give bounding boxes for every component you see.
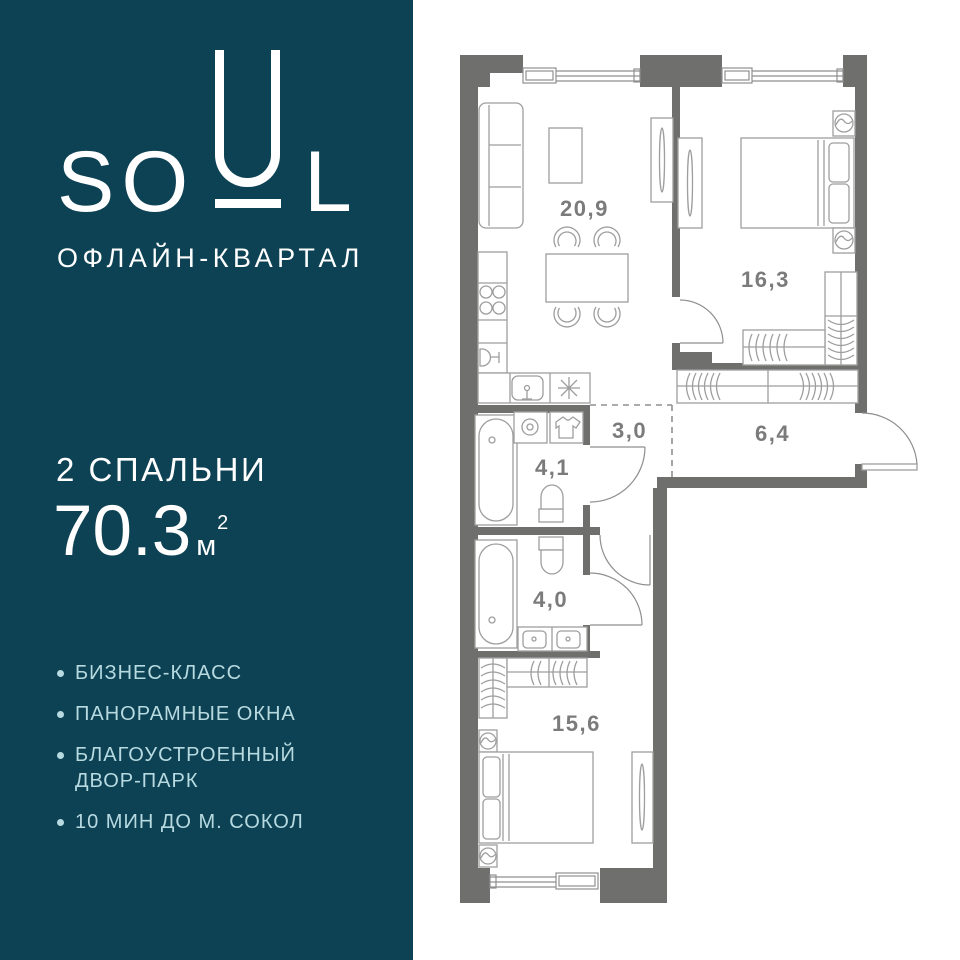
feature-item: БЛАГОУСТРОЕННЫЙ ДВОР-ПАРК bbox=[57, 742, 329, 794]
cooktop-icon bbox=[558, 377, 580, 399]
room-label-bedroom-2: 15,6 bbox=[552, 711, 601, 736]
closet-hallway bbox=[677, 370, 858, 403]
wardrobe-bedroom-1 bbox=[678, 138, 702, 228]
floorplan-panel: 20,9 16,3 3,0 6,4 4,1 4,0 15,6 bbox=[413, 0, 960, 960]
room-label-bathroom-1: 4,1 bbox=[535, 455, 570, 480]
area-exponent: 2 bbox=[217, 512, 229, 534]
brand-subtitle: ОФЛАЙН-КВАРТАЛ bbox=[57, 243, 364, 274]
closet-corner-bedroom-1 bbox=[825, 272, 857, 365]
console-bedroom-2 bbox=[632, 752, 653, 843]
brand-panel: SO L ОФЛАЙН-КВАРТАЛ 2 СПАЛЬНИ 70.3м2 БИЗ… bbox=[0, 0, 413, 960]
bedrooms-label: 2 СПАЛЬНИ bbox=[56, 451, 267, 489]
bullet-icon bbox=[57, 711, 64, 718]
tv-console bbox=[651, 118, 673, 202]
bullet-icon bbox=[57, 819, 64, 826]
washing-machine bbox=[514, 412, 547, 443]
total-area: 70.3м2 bbox=[53, 496, 229, 567]
bathtub-1 bbox=[475, 415, 517, 525]
bullet-icon bbox=[57, 752, 64, 759]
area-unit: м2 bbox=[196, 530, 229, 562]
toilet-2 bbox=[539, 537, 563, 574]
logo-letters-so: SO bbox=[57, 151, 195, 213]
window-bedroom-1 bbox=[722, 68, 843, 83]
floorplan-drawing: 20,9 16,3 3,0 6,4 4,1 4,0 15,6 bbox=[413, 0, 960, 960]
closet-row-bedroom-2 bbox=[507, 658, 587, 687]
door-bedroom-1 bbox=[680, 300, 723, 343]
room-label-living: 20,9 bbox=[560, 196, 609, 221]
nightstand-lamp-2a bbox=[479, 730, 497, 752]
dining-table bbox=[546, 254, 628, 302]
laundry-basket bbox=[550, 412, 583, 443]
feature-list: БИЗНЕС-КЛАСС ПАНОРАМНЫЕ ОКНА БЛАГОУСТРОЕ… bbox=[57, 660, 329, 850]
area-number: 70.3 bbox=[53, 492, 191, 571]
window-living bbox=[523, 68, 640, 83]
wardrobe-bedroom-2 bbox=[479, 658, 507, 718]
logo-u-underline bbox=[215, 199, 281, 208]
bathtub-2 bbox=[475, 540, 517, 648]
nightstand-lamp-2b bbox=[479, 845, 497, 867]
logo-letter-u-shape bbox=[215, 50, 280, 187]
door-bedroom-2 bbox=[600, 535, 650, 585]
kitchen-cabinets bbox=[478, 252, 507, 373]
bed-1 bbox=[741, 138, 854, 228]
window-bedroom-2 bbox=[490, 873, 598, 889]
kitchen-sink bbox=[512, 376, 543, 400]
door-bathroom-2 bbox=[590, 573, 642, 625]
bed-2 bbox=[479, 752, 593, 843]
listing-card: SO L ОФЛАЙН-КВАРТАЛ 2 СПАЛЬНИ 70.3м2 БИЗ… bbox=[0, 0, 960, 960]
door-entrance bbox=[862, 413, 917, 470]
room-label-corridor: 3,0 bbox=[612, 418, 647, 443]
closet-row-bedroom-1 bbox=[743, 330, 825, 365]
door-bathroom-1 bbox=[590, 447, 645, 502]
logo-letter-l: L bbox=[304, 151, 352, 213]
feature-item: ПАНОРАМНЫЕ ОКНА bbox=[57, 701, 329, 727]
feature-item: 10 МИН ДО М. СОКОЛ bbox=[57, 809, 329, 835]
feature-item: БИЗНЕС-КЛАСС bbox=[57, 660, 329, 686]
room-label-hallway: 6,4 bbox=[755, 421, 790, 446]
coffee-table bbox=[549, 128, 582, 183]
sofa bbox=[479, 103, 523, 228]
feature-label: 10 МИН ДО М. СОКОЛ bbox=[75, 809, 304, 835]
room-label-bedroom-1: 16,3 bbox=[741, 267, 790, 292]
feature-label: БЛАГОУСТРОЕННЫЙ ДВОР-ПАРК bbox=[75, 742, 329, 794]
soul-logo: SO L bbox=[57, 50, 377, 213]
feature-label: ПАНОРАМНЫЕ ОКНА bbox=[75, 701, 296, 727]
bullet-icon bbox=[57, 670, 64, 677]
nightstand-lamp-1b bbox=[833, 228, 855, 253]
room-label-bathroom-2: 4,0 bbox=[533, 587, 568, 612]
nightstand-lamp-1a bbox=[833, 111, 855, 136]
feature-label: БИЗНЕС-КЛАСС bbox=[75, 660, 242, 686]
toilet-1 bbox=[539, 485, 563, 522]
vanity-double-sink bbox=[518, 627, 587, 651]
